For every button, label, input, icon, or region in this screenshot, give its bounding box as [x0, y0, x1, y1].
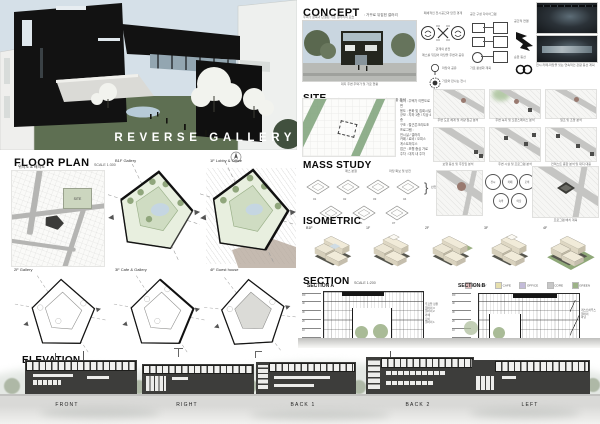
section-a-drawing: RF 4F 3F 2F 1F GL 루프탑 정원갤러리 3 갤러리 2카페 로비…: [302, 291, 440, 341]
diagram-box: [472, 37, 485, 47]
diagram-caption2: 가로 활성화 계획: [470, 67, 516, 71]
concept-flow: 공간적 연결 순환 동선: [514, 20, 536, 92]
process-tree-note: 마당의 공유: [442, 67, 468, 71]
section-legend: GALLERY CAFE OFFICE CORE GREEN: [466, 273, 600, 291]
mass-sketch-row-1: [305, 176, 425, 198]
section-b-title: SECTION B: [458, 283, 485, 289]
survey-pole-icon: [178, 348, 179, 357]
legend-chip-cafe: [496, 283, 501, 288]
mass-bracket: }: [424, 180, 428, 195]
section-ground: [298, 338, 600, 348]
site-tag: SITE: [64, 189, 91, 208]
site-map: [303, 99, 395, 156]
isometric-1f: [364, 228, 420, 270]
interior-render-bottom: [537, 36, 597, 62]
legend-chip-green: [573, 283, 578, 288]
location-map: SITE: [12, 171, 104, 266]
process-stamp-note: 가로와 만나는 전시: [442, 80, 468, 84]
concept-intro: 주택가 골목과 단절된 기존 갤러리의 모습: [303, 16, 415, 20]
plan-label-3f: 3F Cafe & Gallery: [115, 267, 147, 272]
hero-render: [0, 0, 297, 150]
analysis-map-4: [434, 128, 484, 161]
plan-label-b1f: B1F Gallery: [115, 158, 136, 163]
presentation-board: REVERSE GALLERY CONCEPT : 거꾸로 뒤집힌 갤러리 주택…: [0, 0, 600, 424]
mass-step-label: 07: [392, 222, 395, 226]
site-info: 위치 : 주택가 이면도로 변 용도 : 문화 및 집회시설 규모 : 지하 1…: [400, 99, 432, 157]
plan-label-2f: 2F Gallery: [14, 267, 32, 272]
program-circles: 전시 카페 로비 숙박 마당: [485, 174, 535, 210]
analysis-caption-3: 일조 및 조망 분석: [543, 119, 599, 123]
section-b-notes: 게스트하우스갤러리마당: [581, 309, 600, 320]
process-caption-bottom: 매스를 뒤집어 마당을 주변과 공유: [418, 54, 468, 58]
mass-annotation-2: 마당 확보 및 반전: [380, 170, 420, 174]
diagram-circle: [472, 52, 483, 63]
hands-exchange-icon: [420, 20, 466, 46]
elevation-back2: [366, 357, 474, 394]
isometric-3f: [482, 228, 538, 270]
isometric-4f: [541, 228, 599, 270]
elevation-front: [25, 360, 137, 394]
elevation-label-left: LEFT: [490, 402, 570, 408]
elevation-label-front: FRONT: [27, 402, 107, 408]
chain-link-icon: [515, 64, 533, 75]
legend-chip-office: [520, 283, 525, 288]
isometric-b1f: [305, 228, 361, 270]
analysis-caption-1: 주변 도로 체계 및 차량 접근 분석: [430, 119, 486, 123]
chain-note: 전시-카페-마당을 잇는 연속적인 관람 동선 계획: [536, 64, 598, 68]
plan-4f: [204, 274, 300, 358]
concept-photo: [303, 21, 416, 81]
tree-icon: [430, 64, 440, 75]
diagram-box: [472, 23, 485, 33]
diagram-box: [493, 51, 508, 63]
plan-3f: [112, 274, 210, 358]
process-caption-top: 폐쇄적인 전시공간과 닫힌 경계: [418, 12, 468, 16]
section-scale: SCALE 1:200: [354, 281, 376, 285]
program-map-2: [533, 167, 598, 217]
program-map-1: [437, 171, 482, 215]
analysis-map-1: [434, 90, 484, 118]
analysis-map-6: [546, 128, 596, 161]
legend-chip-core: [548, 283, 553, 288]
section-a-title: SECTION A: [307, 283, 334, 289]
poster-title: REVERSE GALLERY: [104, 132, 296, 144]
arrow-caption: 공간적 연결: [514, 20, 536, 24]
plan-2f: [12, 274, 112, 358]
diagram-caption: 공간 구성 다이어그램: [470, 13, 516, 17]
site-boundary: [338, 120, 358, 138]
section-b-drawing: RF 4F 3F 2F 1F GL 게스트하우스갤러리마당: [452, 291, 600, 341]
elevation-left: [472, 360, 590, 394]
interior-render-top: [537, 3, 597, 33]
plan-label-4f: 4F Guest house: [210, 267, 238, 272]
diagram-box: [493, 36, 508, 48]
analysis-map-5: [490, 128, 540, 161]
isometric-2f: [423, 228, 479, 270]
analysis-map-3: [546, 90, 596, 118]
section-a-notes: 루프탑 정원갤러리 3 갤러리 2카페 로비갤러리 1: [425, 303, 441, 325]
stamp-icon: [429, 77, 441, 89]
program-map-caption: 프로그램 배치 계획: [533, 219, 598, 223]
concept-process: 폐쇄적인 전시공간과 닫힌 경계 관계의 반전 매스를 뒤집어 마당을 주변과 …: [418, 12, 468, 90]
mass-step-label: 01: [313, 198, 316, 202]
elevation-label-back2: BACK 2: [378, 402, 458, 408]
mass-annotation-1: 매스 분절: [336, 170, 366, 174]
diagram-box: [493, 22, 508, 34]
chain-caption: 순환 동선: [514, 56, 536, 60]
flow-arrow-icon: [515, 30, 535, 52]
elevation-back1: [256, 362, 356, 394]
elevation-right: [142, 364, 254, 394]
concept-diagrams: 공간 구성 다이어그램 가로 활성화 계획: [470, 13, 516, 91]
mass-bracket-note: 반전: [431, 186, 437, 190]
plan-b1f: [108, 164, 200, 264]
analysis-map-2: [490, 90, 540, 118]
process-caption-mid: 관계의 반전: [418, 48, 468, 52]
plan-1f: [200, 162, 296, 266]
elevation-label-back1: BACK 1: [263, 402, 343, 408]
survey-pole-icon: [255, 351, 256, 358]
analysis-caption-2: 주변 녹지 및 오픈스페이스 분석: [487, 119, 543, 123]
elevation-label-right: RIGHT: [147, 402, 227, 408]
analysis-caption-4: 보행 동선 및 주진입 분석: [430, 163, 486, 167]
concept-photo-caption: 대지 주변 주택가 및 가로 현황: [303, 83, 416, 87]
site-plan-label: 위치도 & 배치도: [18, 164, 45, 170]
